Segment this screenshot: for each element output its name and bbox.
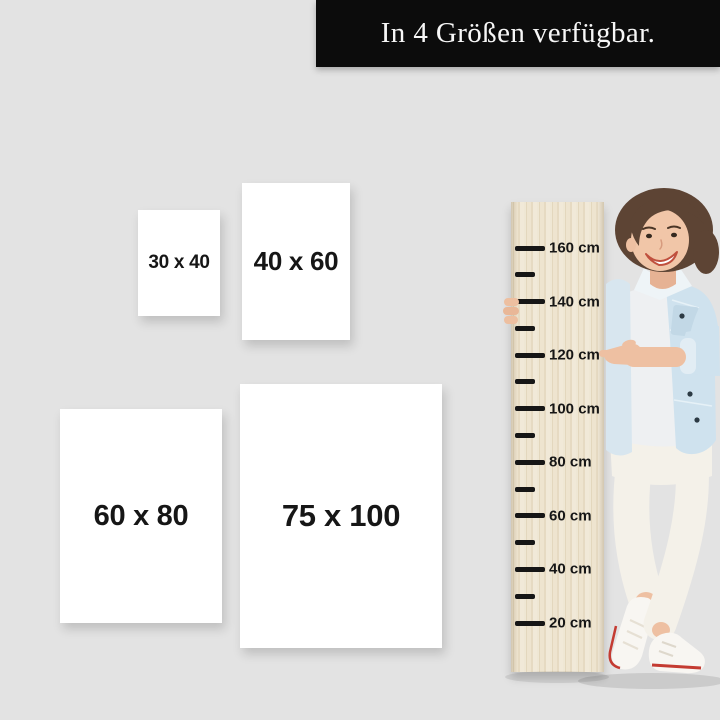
ruler-tick-label: 160 cm	[549, 240, 600, 257]
ruler-board: 160 cm140 cm120 cm100 cm80 cm60 cm40 cm2…	[511, 202, 604, 672]
ruler-major-tick: 20 cm	[515, 621, 545, 626]
woman-face	[631, 209, 689, 271]
poster-size-40x60: 40 x 60	[242, 183, 350, 340]
ruler-minor-tick	[515, 540, 535, 545]
ruler-tick-label: 140 cm	[549, 293, 600, 310]
ruler-minor-tick	[515, 594, 535, 599]
ruler-minor-tick	[515, 433, 535, 438]
white-pants-front-leg	[652, 464, 692, 638]
sneaker-left	[610, 597, 654, 669]
ruler-minor-tick	[515, 379, 535, 384]
poster-size-label: 60 x 80	[94, 500, 189, 533]
ruler-major-tick: 80 cm	[515, 460, 545, 465]
white-pants	[610, 438, 712, 612]
poster-size-60x80: 60 x 80	[60, 409, 222, 623]
pointing-arm	[599, 326, 720, 376]
ruler-major-tick: 160 cm	[515, 246, 545, 251]
floor-shadow	[505, 671, 720, 689]
ruler-major-tick: 100 cm	[515, 406, 545, 411]
ruler-minor-tick	[515, 272, 535, 277]
poster-size-label: 40 x 60	[254, 246, 339, 277]
ruler-minor-tick	[515, 326, 535, 331]
ruler-tick-label: 60 cm	[549, 507, 592, 524]
jacket-buttons	[668, 286, 701, 422]
availability-banner-text: In 4 Größen verfügbar.	[381, 17, 656, 50]
ruler-major-tick: 120 cm	[515, 353, 545, 358]
woman-hair	[615, 188, 713, 272]
ruler-tick-label: 20 cm	[549, 615, 592, 632]
pointing-hand	[599, 338, 642, 365]
sneaker-right	[649, 633, 705, 673]
poster-size-label: 75 x 100	[282, 498, 400, 534]
ruler-major-tick: 140 cm	[515, 299, 545, 304]
ruler-tick-label: 120 cm	[549, 347, 600, 364]
ruler-major-tick: 40 cm	[515, 567, 545, 572]
jacket-collar	[634, 268, 692, 300]
white-tshirt	[622, 285, 706, 452]
ruler-tick-label: 100 cm	[549, 400, 600, 417]
availability-banner: In 4 Größen verfügbar.	[316, 0, 720, 67]
ruler-minor-tick	[515, 487, 535, 492]
poster-size-75x100: 75 x 100	[240, 384, 442, 648]
denim-jacket	[606, 268, 719, 456]
ruler-major-tick: 60 cm	[515, 513, 545, 518]
tshirt-neckline	[646, 286, 684, 296]
woman-face-features	[643, 227, 680, 266]
woman-head	[615, 188, 719, 289]
poster-size-label: 30 x 40	[148, 252, 209, 274]
product-size-infographic: In 4 Größen verfügbar. 30 x 40 40 x 60 6…	[0, 0, 720, 720]
ruler-tick-label: 40 cm	[549, 561, 592, 578]
ruler-tick-label: 80 cm	[549, 454, 592, 471]
poster-size-30x40: 30 x 40	[138, 210, 220, 316]
